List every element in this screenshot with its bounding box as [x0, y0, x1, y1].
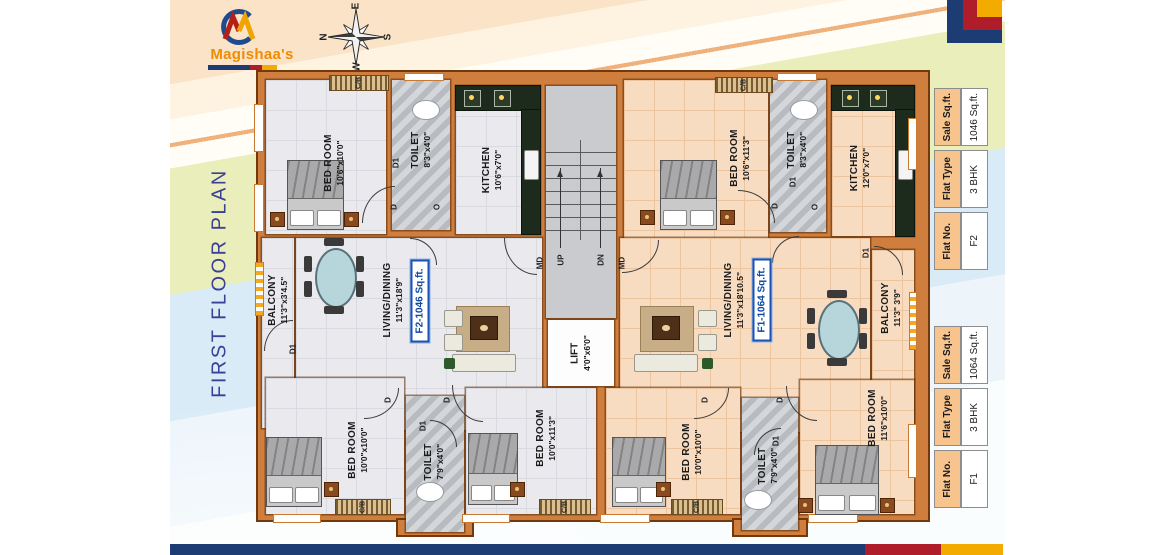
dining-chair	[304, 281, 312, 297]
door-label-d1: D1	[862, 248, 871, 258]
door-label-d1: D1	[419, 421, 428, 431]
brand-bar-yellow	[262, 65, 277, 70]
window	[908, 424, 917, 478]
flat-spec-table-f2: Sale Sq.ft. 1046 Sq.ft. Flat Type 3 BHK …	[934, 88, 988, 270]
room-name: TOILET	[423, 443, 435, 480]
room-label-f2-balcony: BALCONY 11'3"x3'4.5"	[267, 274, 289, 326]
room-label-f1-balcony: BALCONY 11'3" 3'9"	[880, 282, 902, 334]
room-label-f2-toilet2: TOILET 7'9"x4'0"	[423, 443, 445, 480]
flat-spec-table-f1: Sale Sq.ft. 1064 Sq.ft. Flat Type 3 BHK …	[934, 326, 988, 508]
window	[600, 514, 650, 523]
header-text: Sale Sq.ft.	[942, 93, 953, 141]
door-label-d1: D1	[289, 344, 298, 354]
dining-chair	[356, 281, 364, 297]
brand-bar-red	[250, 65, 262, 70]
window	[777, 73, 817, 81]
main-door-label: MD	[536, 257, 545, 269]
value-text: 3 BHK	[969, 403, 980, 432]
table-row: Flat No. F1	[934, 450, 988, 508]
header-text: Flat Type	[942, 395, 953, 438]
table-row: Flat No. F2	[934, 212, 988, 270]
door-label-d1: D1	[392, 158, 401, 168]
room-dims: 11'3"x18'9"	[394, 262, 404, 337]
room-name: TOILET	[410, 131, 422, 168]
balcony-window	[255, 262, 264, 316]
stair-down-label: DN	[597, 254, 606, 266]
room-label-f2-bed3: BED ROOM 10'0"x11'3"	[535, 409, 557, 466]
kitchen-sink-icon	[524, 150, 539, 180]
value-text: 1046 Sq.ft.	[969, 93, 980, 141]
header-text: Flat Type	[942, 157, 953, 200]
header-text: Sale Sq.ft.	[942, 331, 953, 379]
lift-name: LIFT	[569, 335, 582, 371]
stair-down-arrow	[600, 168, 601, 248]
lift-dims: 4'0"x6'0"	[582, 335, 593, 371]
table-row: Flat Type 3 BHK	[934, 388, 988, 446]
room-dims: 10'6"x7'0"	[493, 147, 503, 194]
sofa	[452, 354, 516, 372]
bed	[266, 437, 322, 507]
cupboard-label: C/B	[562, 501, 569, 513]
balcony-window	[909, 292, 917, 350]
door-label: D	[443, 397, 452, 403]
table-row: Flat Type 3 BHK	[934, 150, 988, 208]
table-value-cell: 3 BHK	[961, 150, 988, 208]
room-name: BED ROOM	[347, 421, 359, 478]
room-label-f1-kitchen: KITCHEN 12'0"x7'0"	[849, 145, 871, 192]
dining-chair	[827, 358, 847, 366]
dining-chair	[807, 333, 815, 349]
room-label-f2-living: LIVING/DINING 11'3"x18'9"	[382, 262, 404, 337]
footer-bar-yellow	[941, 544, 1003, 555]
table-value-cell: F2	[961, 212, 988, 270]
door-label: D	[776, 397, 785, 403]
dining-chair	[859, 308, 867, 324]
stair-up-arrow	[560, 168, 561, 248]
door-label: D	[701, 397, 710, 403]
sofa	[634, 354, 698, 372]
table-value-cell: 3 BHK	[961, 388, 988, 446]
room-label-f1-toilet1: TOILET 8'3"x4'0"	[786, 131, 808, 168]
armchair	[444, 334, 463, 351]
bed	[815, 445, 879, 515]
plant-icon	[702, 358, 713, 369]
table-value-cell: 1064 Sq.ft.	[961, 326, 988, 384]
room-dims: 8'3"x4'0"	[422, 131, 432, 168]
bedside-table	[640, 210, 655, 225]
room-dims: 12'0"x7'0"	[861, 145, 871, 192]
room-dims: 11'6"x10'0"	[879, 389, 889, 446]
corner-deco-yellow	[977, 0, 1002, 17]
window	[908, 118, 917, 170]
window	[254, 184, 264, 232]
window	[254, 104, 264, 152]
room-dims: 10'0"x11'3"	[547, 409, 557, 466]
room-label-f2-bed2: BED ROOM 10'0"x10'0"	[347, 421, 369, 478]
dining-chair	[807, 308, 815, 324]
room-name: TOILET	[757, 447, 769, 484]
room-dims: 10'0"x10'0"	[693, 423, 703, 480]
bedside-table	[720, 210, 735, 225]
bedside-table	[880, 498, 895, 513]
washbasin-icon	[412, 100, 440, 120]
value-text: 1064 Sq.ft.	[969, 331, 980, 379]
plant-icon	[444, 358, 455, 369]
bedside-table	[656, 482, 671, 497]
main-door-label: MD	[618, 257, 627, 269]
lift-label: LIFT 4'0"x6'0"	[569, 335, 592, 371]
room-name: TOILET	[786, 131, 798, 168]
page-title: FIRST FLOOR PLAN	[209, 168, 232, 398]
room-label-f2-kitchen: KITCHEN 10'6"x7'0"	[481, 147, 503, 194]
coffee-table	[652, 316, 680, 340]
brand-underline	[208, 65, 277, 70]
room-dims: 8'3"x4'0"	[798, 131, 808, 168]
stove-burner-icon	[494, 90, 511, 107]
dining-table	[818, 300, 860, 360]
bed	[660, 160, 717, 230]
room-name: BALCONY	[880, 282, 892, 334]
bedside-table	[798, 498, 813, 513]
room-label-f2-bed1: BED ROOM 10'6"x10'0"	[323, 134, 345, 191]
dining-chair	[859, 333, 867, 349]
room-dims: 10'6"x11'3"	[741, 129, 751, 186]
room-name: KITCHEN	[849, 145, 861, 192]
table-header-cell: Sale Sq.ft.	[934, 88, 961, 146]
stove-burner-icon	[464, 90, 481, 107]
cupboard-label: C/B	[360, 501, 367, 513]
room-label-f1-bed3: BED ROOM 11'6"x10'0"	[867, 389, 889, 446]
window	[273, 514, 321, 523]
room-label-f1-toilet2: TOILET 7'9"x4'0"	[757, 447, 779, 484]
stove-burner-icon	[870, 90, 887, 107]
value-text: 3 BHK	[969, 165, 980, 194]
room-label-f1-living: LIVING/DINING 11'3"x18'10.5"	[723, 262, 745, 337]
armchair	[698, 334, 717, 351]
room-dims: 11'3" 3'9"	[892, 282, 902, 334]
room-name: BED ROOM	[867, 389, 879, 446]
table-value-cell: F1	[961, 450, 988, 508]
table-value-cell: 1046 Sq.ft.	[961, 88, 988, 146]
value-text: F2	[969, 235, 980, 247]
page: Magishaa's E N S W FIRST FLOOR PLAN UP D…	[0, 0, 1170, 555]
door-label: D	[384, 397, 393, 403]
table-header-cell: Flat Type	[934, 388, 961, 446]
table-header-cell: Flat No.	[934, 212, 961, 270]
compass-rose-icon	[328, 9, 384, 65]
door-label: D	[390, 204, 399, 210]
room-label-f1-bed1: BED ROOM 10'6"x11'3"	[729, 129, 751, 186]
cupboard-label: C/B	[694, 501, 701, 513]
brand-monogram-icon	[212, 6, 260, 48]
compass-south: S	[383, 34, 394, 41]
brand-bar-blue	[208, 65, 250, 70]
coffee-table	[470, 316, 498, 340]
dining-chair	[324, 238, 344, 246]
brand-name: Magishaa's	[202, 46, 302, 63]
room-dims: 7'9"x4'0"	[435, 443, 445, 480]
door-label-d1: D1	[789, 177, 798, 187]
bedside-table	[344, 212, 359, 227]
table-header-cell: Sale Sq.ft.	[934, 326, 961, 384]
room-name: LIVING/DINING	[382, 262, 394, 337]
footer-bar-red	[865, 544, 941, 555]
flat-area-tag-f1: F1-1064 Sq.ft.	[753, 258, 772, 341]
footer-bar-blue	[170, 544, 865, 555]
washbasin-icon	[416, 482, 444, 502]
washbasin-icon	[744, 490, 772, 510]
room-name: BALCONY	[267, 274, 279, 326]
dining-table	[315, 248, 357, 308]
room-label-f1-bed2: BED ROOM 10'0"x10'0"	[681, 423, 703, 480]
stove-burner-icon	[842, 90, 859, 107]
room-label-f2-toilet1: TOILET 8'3"x4'0"	[410, 131, 432, 168]
compass-west: W	[352, 62, 363, 71]
room-name: LIVING/DINING	[723, 262, 735, 337]
dining-chair	[356, 256, 364, 272]
armchair	[698, 310, 717, 327]
window	[462, 514, 510, 523]
flat-area-tag-f2: F2-1046 Sq.ft.	[411, 259, 430, 342]
cupboard-label: C/B	[356, 77, 363, 89]
opening-label: O	[433, 204, 442, 210]
room-name: BED ROOM	[729, 129, 741, 186]
header-text: Flat No.	[942, 461, 953, 498]
door-label-d1: D1	[772, 436, 781, 446]
bedside-table	[510, 482, 525, 497]
dining-chair	[827, 290, 847, 298]
table-row: Sale Sq.ft. 1064 Sq.ft.	[934, 326, 988, 384]
bedside-table	[270, 212, 285, 227]
stair-up-label: UP	[557, 254, 566, 265]
cupboard-label: C/B	[741, 79, 748, 91]
compass-east: E	[351, 3, 362, 10]
room-name: BED ROOM	[323, 134, 335, 191]
header-text: Flat No.	[942, 223, 953, 260]
bedside-table	[324, 482, 339, 497]
room-name: KITCHEN	[481, 147, 493, 194]
room-name: BED ROOM	[535, 409, 547, 466]
room-dims: 11'3"x18'10.5"	[735, 262, 745, 337]
table-header-cell: Flat No.	[934, 450, 961, 508]
window	[808, 514, 858, 523]
room-dims: 11'3"x3'4.5"	[279, 274, 289, 326]
dining-chair	[324, 306, 344, 314]
stair-steps	[546, 140, 616, 240]
dining-chair	[304, 256, 312, 272]
room-name: BED ROOM	[681, 423, 693, 480]
stair-divider	[580, 140, 581, 240]
door-label: D	[771, 203, 780, 209]
table-header-cell: Flat Type	[934, 150, 961, 208]
opening-label: O	[811, 204, 820, 210]
washbasin-icon	[790, 100, 818, 120]
window	[404, 73, 444, 81]
armchair	[444, 310, 463, 327]
room-dims: 7'9"x4'0"	[769, 447, 779, 484]
table-row: Sale Sq.ft. 1046 Sq.ft.	[934, 88, 988, 146]
compass-north: N	[319, 33, 330, 40]
room-dims: 10'0"x10'0"	[359, 421, 369, 478]
room-dims: 10'6"x10'0"	[335, 134, 345, 191]
value-text: F1	[969, 473, 980, 485]
